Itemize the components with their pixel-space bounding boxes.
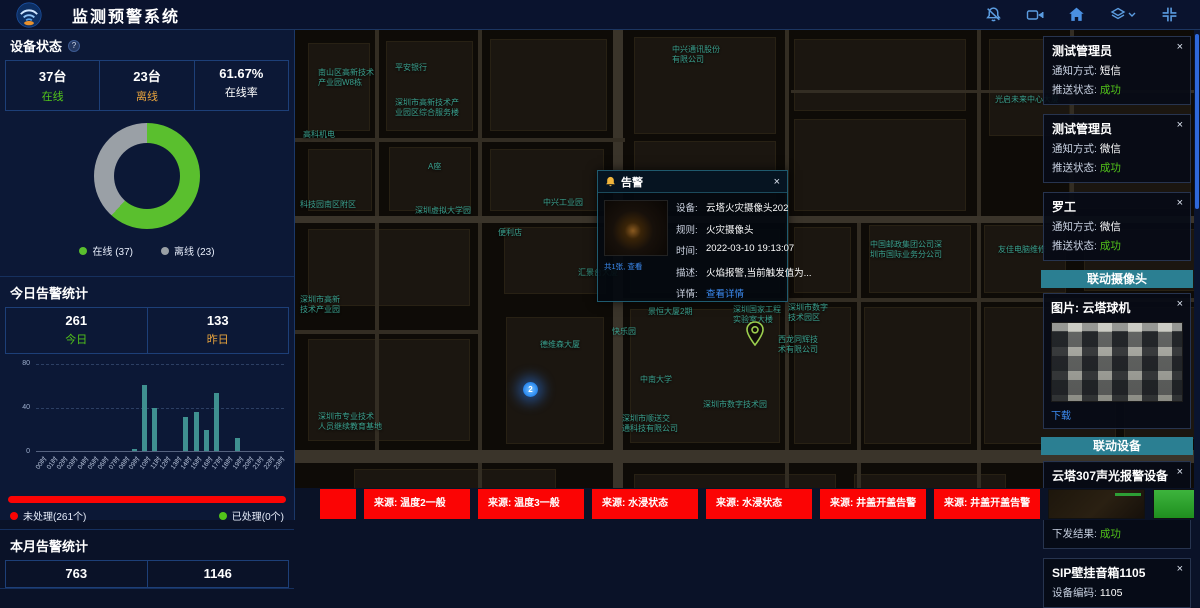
stat-online-rate: 61.67% 在线率 <box>194 61 288 110</box>
bar-slot: 16时 <box>201 364 211 451</box>
bar-slot: 23时 <box>274 364 284 451</box>
alarm-popup-header: 告警 × <box>598 171 787 193</box>
device-name: SIP壁挂音箱1105 <box>1052 564 1182 581</box>
month-alarm-section: 本月告警统计 763 1146 <box>0 530 294 589</box>
stat-value: 261 <box>6 313 147 328</box>
alert-box[interactable]: 来源: 水浸状态 <box>706 489 812 519</box>
bar <box>204 430 209 451</box>
bar-slot: 01时 <box>46 364 56 451</box>
map-road <box>857 218 861 520</box>
bar <box>132 449 137 451</box>
map-building <box>309 44 369 130</box>
map-building <box>795 308 850 443</box>
notify-status-row: 推送状态: 成功 <box>1052 82 1182 97</box>
map-building <box>491 40 606 130</box>
bar-slot: 07时 <box>108 364 118 451</box>
map-label: 中兴工业园 <box>543 198 583 208</box>
field-detail: 详情: 查看详情 <box>676 286 812 300</box>
fullscreen-icon[interactable] <box>1161 6 1178 23</box>
bottom-alert-bar: 来源: 温度2一般来源: 温度3一般来源: 水浸状态来源: 水浸状态来源: 井盖… <box>295 488 1200 520</box>
close-icon[interactable]: × <box>1177 41 1183 53</box>
alert-box[interactable] <box>320 489 356 519</box>
bar-slot: 08时 <box>119 364 129 451</box>
stat-value: 23台 <box>100 66 193 85</box>
notify-method-row: 通知方式: 短信 <box>1052 63 1182 78</box>
alert-box[interactable]: 来源: 井盖开盖告警 <box>820 489 926 519</box>
bell-muted-icon[interactable] <box>985 6 1002 23</box>
legend-processed: 已处理(0个) <box>219 508 284 523</box>
scrollbar-thumb[interactable] <box>1195 34 1199 209</box>
legend-dot <box>161 247 169 255</box>
y-tick-label: 80 <box>22 360 30 367</box>
bar-slot: 18时 <box>222 364 232 451</box>
alarm-snapshot-image[interactable] <box>604 200 668 256</box>
device-status-title: 设备状态 <box>10 36 62 55</box>
notify-name: 测试管理员 <box>1052 120 1182 137</box>
field-value: 火焰报警,当前触发值为... <box>706 265 812 279</box>
map-label: 中国邮政集团公司深 圳市国际业务分公司 <box>870 240 942 259</box>
alert-box[interactable]: 来源: 温度2一般 <box>364 489 470 519</box>
map-label: 南山区高新技术 产业园W8栋 <box>318 68 374 87</box>
left-sidebar: 设备状态 ? 37台 在线 23台 离线 61.67% 在线率 在线 (37) <box>0 30 295 520</box>
alarm-popup: 告警 × 共1张, 查看 设备: 云塔火灾摄像头202 规则: 火灾摄像头 时间… <box>597 170 788 302</box>
map-label: 快乐园 <box>612 327 636 337</box>
legend-label: 离线 (23) <box>174 243 215 258</box>
map-building <box>309 230 469 305</box>
alert-image-green[interactable] <box>1153 489 1200 519</box>
bar-slot: 09时 <box>129 364 139 451</box>
linked-camera-banner: 联动摄像头 <box>1041 270 1193 288</box>
notify-name: 测试管理员 <box>1052 42 1182 59</box>
bar-slot: 12时 <box>160 364 170 451</box>
map-label: 便利店 <box>498 228 522 238</box>
map-building <box>865 308 970 443</box>
today-alarm-title: 今日告警统计 <box>10 283 88 302</box>
map-label: 深圳市专业技术 人员继续教育基地 <box>318 412 382 431</box>
donut-legend: 在线 (37) 离线 (23) <box>0 243 294 258</box>
layers-icon[interactable] <box>1109 6 1137 23</box>
device-status-section: 设备状态 ? 37台 在线 23台 离线 61.67% 在线率 在线 (37) <box>0 30 294 277</box>
alarm-bell-icon <box>605 176 616 187</box>
process-legend: 未处理(261个) 已处理(0个) <box>0 503 294 529</box>
stat-yesterday: 133 昨日 <box>147 308 289 353</box>
map-road <box>295 330 478 334</box>
today-bar-chart-yaxis: 80400 <box>6 360 30 455</box>
map-label: 科技园南区附区 <box>300 200 356 210</box>
bottom-alert-list: 来源: 温度2一般来源: 温度3一般来源: 水浸状态来源: 水浸状态来源: 井盖… <box>320 489 1040 519</box>
map-label: 深圳虚拟大学园 <box>415 206 471 216</box>
y-tick-label: 0 <box>26 448 30 455</box>
bar <box>214 393 219 451</box>
notify-method-row: 通知方式: 微信 <box>1052 219 1182 234</box>
device-cluster-marker[interactable]: 2 <box>523 382 538 397</box>
bar-slot: 22时 <box>263 364 273 451</box>
home-icon[interactable] <box>1068 6 1085 23</box>
field-value: 2022-03-10 19:13:07 <box>706 243 794 257</box>
map-building <box>795 120 965 210</box>
alarm-popup-body: 共1张, 查看 设备: 云塔火灾摄像头202 规则: 火灾摄像头 时间: 202… <box>598 193 787 315</box>
stat-label: 离线 <box>100 88 193 104</box>
map-building <box>505 228 605 293</box>
bar <box>152 408 157 452</box>
bar <box>235 438 240 451</box>
camera-image-label: 图片: 云塔球机 <box>1051 299 1183 316</box>
device-result-row: 下发结果: 成功 <box>1052 526 1182 541</box>
app-header: 监测预警系统 <box>0 0 1200 30</box>
map-building <box>870 226 970 292</box>
field-rule: 规则: 火灾摄像头 <box>676 222 812 236</box>
map-label: 高科机电 <box>303 130 335 140</box>
map-road <box>977 30 981 520</box>
legend-unprocessed: 未处理(261个) <box>10 508 86 523</box>
bar <box>194 412 199 451</box>
notify-name: 罗工 <box>1052 198 1182 215</box>
stat-this-month: 763 <box>6 561 147 587</box>
bar-slot: 17时 <box>212 364 222 451</box>
y-tick-label: 40 <box>22 404 30 411</box>
map-label: A座 <box>428 162 441 172</box>
today-bar-chart: 80400 00时01时02时03时04时05时06时07时08时09时10时1… <box>36 364 284 452</box>
bar-slot: 11时 <box>150 364 160 451</box>
page-title: 监测预警系统 <box>72 3 180 27</box>
map-label: 友佳电脑维修 <box>998 245 1046 255</box>
view-detail-link[interactable]: 查看详情 <box>706 286 744 300</box>
bar-slot: 04时 <box>77 364 87 451</box>
bar-slot: 13时 <box>170 364 180 451</box>
unprocessed-progress-bar <box>8 496 286 503</box>
alarm-fields: 设备: 云塔火灾摄像头202 规则: 火灾摄像头 时间: 2022-03-10 … <box>672 200 812 308</box>
close-icon[interactable]: × <box>1177 119 1183 131</box>
alarm-popup-title: 告警 <box>621 174 643 190</box>
legend-label: 已处理(0个) <box>232 508 284 523</box>
camera-snapshot-image[interactable] <box>1051 322 1183 402</box>
map-label: 深圳市高新技术产 业园区综合服务楼 <box>395 98 459 117</box>
map-label: 西龙同辉技 术有限公司 <box>778 335 818 354</box>
bar <box>142 385 147 451</box>
field-label: 详情: <box>676 286 706 300</box>
close-icon[interactable]: × <box>774 176 780 188</box>
bar-slot: 15时 <box>191 364 201 451</box>
bar-slot: 05时 <box>88 364 98 451</box>
legend-dot <box>79 247 87 255</box>
right-sidebar: 测试管理员 × 通知方式: 短信 推送状态: 成功 测试管理员 × 通知方式: … <box>1040 30 1194 520</box>
stat-value: 61.67% <box>195 66 288 81</box>
notify-method-row: 通知方式: 微信 <box>1052 141 1182 156</box>
bar-slot: 06时 <box>98 364 108 451</box>
month-alarm-title: 本月告警统计 <box>10 536 88 555</box>
field-label: 规则: <box>676 222 706 236</box>
device-code-row: 设备编码: 1105 <box>1052 585 1182 600</box>
field-device: 设备: 云塔火灾摄像头202 <box>676 200 812 214</box>
device-name: 云塔307声光报警设备 <box>1052 467 1182 484</box>
map-label: 深圳市高新 技术产业园 <box>300 295 340 314</box>
app-logo-icon <box>16 2 42 28</box>
today-alarm-section: 今日告警统计 261 今日 133 昨日 80400 00时01时02时03时0… <box>0 277 294 530</box>
bar-slot: 00时 <box>36 364 46 451</box>
bar-slot: 21时 <box>253 364 263 451</box>
stat-label: 昨日 <box>148 331 289 347</box>
map-label: 深圳市数字技术园 <box>703 400 767 410</box>
today-bar-chart-slots: 00时01时02时03时04时05时06时07时08时09时10时11时12时1… <box>36 364 284 451</box>
stat-value: 763 <box>6 566 147 581</box>
stat-offline: 23台 离线 <box>99 61 193 110</box>
close-icon[interactable]: × <box>1177 298 1183 310</box>
notify-status-row: 推送状态: 成功 <box>1052 160 1182 175</box>
legend-online: 在线 (37) <box>79 243 133 258</box>
month-alarm-stats: 763 1146 <box>5 560 289 588</box>
notification-card: 罗工 × 通知方式: 微信 推送状态: 成功 <box>1043 192 1191 261</box>
bar-slot: 03时 <box>67 364 77 451</box>
field-label: 描述: <box>676 265 706 279</box>
map-label: 中兴通讯股份 有限公司 <box>672 45 720 64</box>
video-camera-icon[interactable] <box>1026 7 1044 23</box>
field-description: 描述: 火焰报警,当前触发值为... <box>676 265 812 279</box>
map-building <box>390 148 470 210</box>
linked-device-card: SIP壁挂音箱1105 × 设备编码: 1105 <box>1043 558 1191 608</box>
field-value: 云塔火灾摄像头202 <box>706 200 788 214</box>
bar-slot: 14时 <box>181 364 191 451</box>
bar-slot: 02时 <box>57 364 67 451</box>
close-icon[interactable]: × <box>1177 197 1183 209</box>
legend-offline: 离线 (23) <box>161 243 215 258</box>
device-status-donut <box>94 123 200 229</box>
alarm-snapshot-link[interactable]: 共1张, 查看 <box>604 261 672 272</box>
field-label: 设备: <box>676 200 706 214</box>
vertical-scrollbar[interactable] <box>1194 30 1200 520</box>
map-label: 德维森大厦 <box>540 340 580 350</box>
legend-label: 未处理(261个) <box>23 508 86 523</box>
alert-box[interactable]: 来源: 井盖开盖告警 <box>934 489 1040 519</box>
map-road <box>295 138 625 142</box>
linked-device-banner: 联动设备 <box>1041 437 1193 455</box>
field-time: 时间: 2022-03-10 19:13:07 <box>676 243 812 257</box>
map-label: 中南大学 <box>640 375 672 385</box>
field-value: 火灾摄像头 <box>706 222 754 236</box>
stat-last-month: 1146 <box>147 561 289 587</box>
alert-image-dark[interactable] <box>1048 489 1145 519</box>
help-icon[interactable]: ? <box>68 40 80 52</box>
alert-box[interactable]: 来源: 水浸状态 <box>592 489 698 519</box>
map-building <box>507 318 603 443</box>
header-toolbar <box>985 6 1178 23</box>
stat-label: 在线 <box>6 88 99 104</box>
legend-dot <box>219 512 227 520</box>
close-icon[interactable]: × <box>1177 466 1183 478</box>
notify-status-row: 推送状态: 成功 <box>1052 238 1182 253</box>
legend-dot <box>10 512 18 520</box>
device-status-stats: 37台 在线 23台 离线 61.67% 在线率 <box>5 60 289 111</box>
alert-box[interactable]: 来源: 温度3一般 <box>478 489 584 519</box>
stat-online: 37台 在线 <box>6 61 99 110</box>
stat-value: 133 <box>148 313 289 328</box>
download-link[interactable]: 下载 <box>1051 407 1183 422</box>
bar-slot: 20时 <box>243 364 253 451</box>
notification-card: 测试管理员 × 通知方式: 微信 推送状态: 成功 <box>1043 114 1191 183</box>
bar-slot: 19时 <box>232 364 242 451</box>
stat-value: 37台 <box>6 66 99 85</box>
field-label: 时间: <box>676 243 706 257</box>
notification-card: 测试管理员 × 通知方式: 短信 推送状态: 成功 <box>1043 36 1191 105</box>
stat-label: 今日 <box>6 331 147 347</box>
map-building <box>795 40 965 110</box>
location-pin-icon[interactable] <box>745 321 765 346</box>
stat-today: 261 今日 <box>6 308 147 353</box>
device-status-donut-wrap <box>94 123 200 229</box>
map-road <box>478 30 482 520</box>
linked-camera-card: 图片: 云塔球机 × 下载 <box>1043 293 1191 429</box>
map-label: 深圳市顺送交 通科技有限公司 <box>622 414 678 433</box>
close-icon[interactable]: × <box>1177 563 1183 575</box>
bar <box>183 417 188 451</box>
stat-label: 在线率 <box>195 84 288 100</box>
bar-slot: 10时 <box>139 364 149 451</box>
today-alarm-stats: 261 今日 133 昨日 <box>5 307 289 354</box>
stat-value: 1146 <box>148 566 289 581</box>
legend-label: 在线 (37) <box>92 243 133 258</box>
map-road <box>375 30 379 450</box>
map-label: 平安银行 <box>395 63 427 73</box>
